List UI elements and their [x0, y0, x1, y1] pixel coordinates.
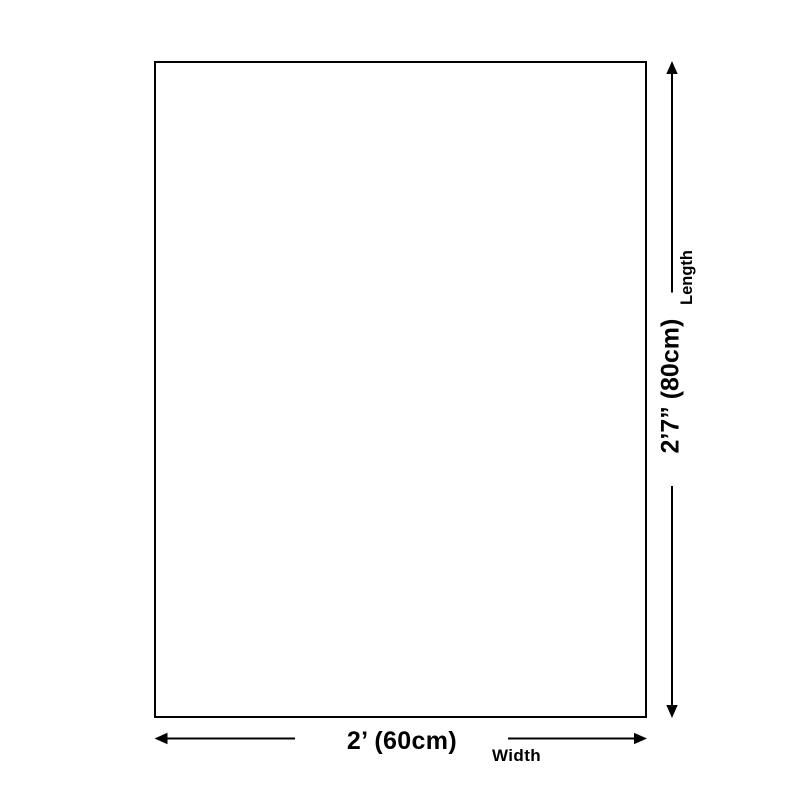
svg-text:2’ (60cm): 2’ (60cm): [347, 727, 457, 755]
svg-text:Length: Length: [678, 250, 696, 305]
svg-text:Width: Width: [492, 746, 541, 765]
svg-text:2’7” (80cm): 2’7” (80cm): [657, 319, 685, 454]
